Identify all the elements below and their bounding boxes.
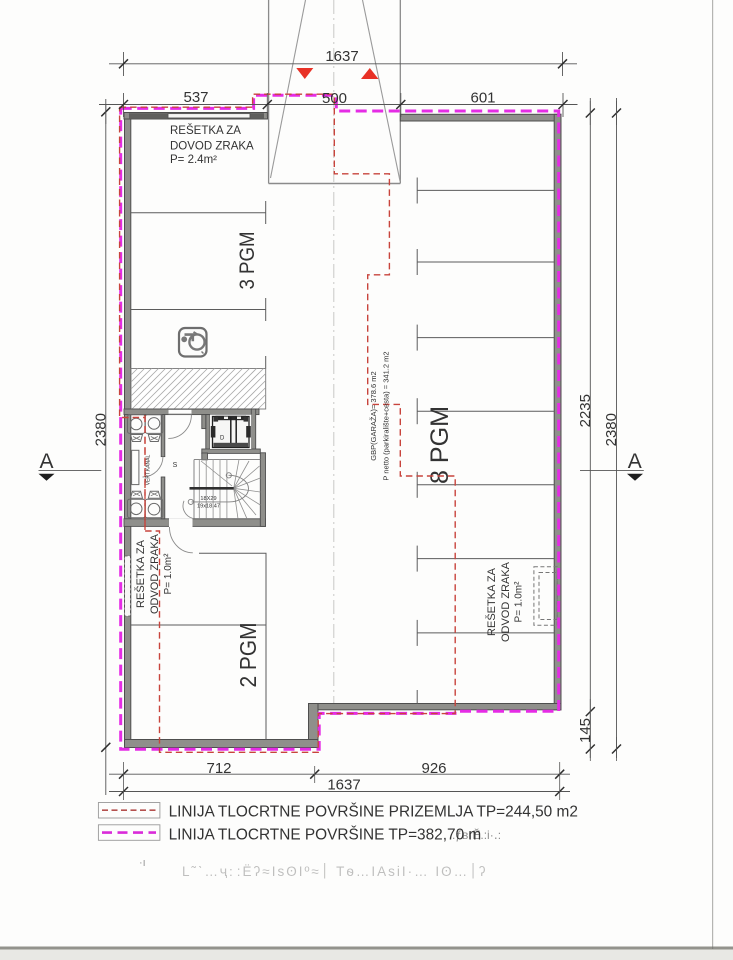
svg-text:GBP(GARAŽA)= 378.6 m2: GBP(GARAŽA)= 378.6 m2 <box>369 371 378 460</box>
svg-text:VERT.KANAL: VERT.KANAL <box>146 455 152 486</box>
svg-text:S: S <box>173 462 178 469</box>
svg-text:A: A <box>628 450 642 473</box>
svg-text:DOVOD ZRAKA: DOVOD ZRAKA <box>170 141 254 153</box>
svg-text:3 PGM: 3 PGM <box>236 231 259 289</box>
svg-text:REŠETKA ZA: REŠETKA ZA <box>485 567 498 636</box>
svg-text:REŠETKA ZA: REŠETKA ZA <box>134 539 147 608</box>
svg-text:ODVOD ZRAKA: ODVOD ZRAKA <box>149 533 161 614</box>
svg-text:P= 1.0m²: P= 1.0m² <box>514 581 525 623</box>
svg-text:2380: 2380 <box>92 413 109 446</box>
svg-text:145: 145 <box>577 718 594 743</box>
svg-text:500: 500 <box>322 90 347 107</box>
svg-text:601: 601 <box>470 90 495 107</box>
svg-text:19x18.47: 19x18.47 <box>197 504 220 510</box>
svg-text:L˜ˋ…ҷ׃ :Ёʔ≈ІѕʘІº≈׀ Tѳ…ІАѕіІ·…: L˜ˋ…ҷ׃ :Ёʔ≈ІѕʘІº≈׀ Tѳ…ІАѕіІ·… Іʘ…׀ʔ <box>182 863 488 879</box>
svg-text:2380: 2380 <box>603 413 620 446</box>
svg-text:LINIJA TLOCRTNE POVRŠINE PRIZE: LINIJA TLOCRTNE POVRŠINE PRIZEMLJA TP=24… <box>169 804 578 821</box>
svg-text:D: D <box>220 436 225 442</box>
svg-text:P= 2.4m²: P= 2.4m² <box>170 154 217 166</box>
svg-text:2235: 2235 <box>577 394 594 427</box>
svg-text:926: 926 <box>421 760 446 777</box>
svg-text:2 PGM: 2 PGM <box>235 623 261 688</box>
svg-text:8 PGM: 8 PGM <box>426 406 454 484</box>
svg-text:P= 1.0m²: P= 1.0m² <box>163 553 174 595</box>
svg-text:1637: 1637 <box>325 48 358 65</box>
svg-text:712: 712 <box>206 760 231 777</box>
svg-text:1637: 1637 <box>327 777 360 794</box>
svg-text:·ı: ·ı <box>139 857 146 869</box>
svg-text:REŠETKA ZA: REŠETKA ZA <box>170 124 241 137</box>
svg-text:LINIJA TLOCRTNE POVRŠINE TP=3: LINIJA TLOCRTNE POVRŠINE TP=382,70 m <box>169 827 482 844</box>
svg-text:18X29: 18X29 <box>200 496 216 502</box>
svg-text:537: 537 <box>183 89 208 106</box>
svg-text:A: A <box>39 450 53 473</box>
svg-text:.ƒвrӖ.:i·․׃: .ƒвrӖ.:i·․׃ <box>452 827 501 842</box>
svg-text:P netto (parkiralište+cesta) =: P netto (parkiralište+cesta) = 341.2 m2 <box>382 351 391 480</box>
svg-text:ODVOD ZRAKA: ODVOD ZRAKA <box>500 561 512 642</box>
